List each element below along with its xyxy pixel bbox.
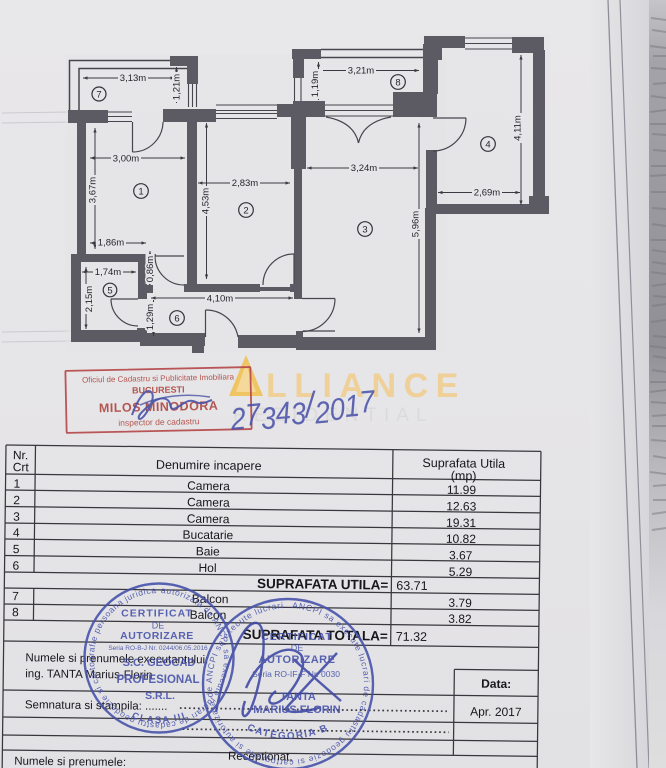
svg-text:Camera: Camera — [187, 479, 230, 494]
svg-text:1,19m: 1,19m — [310, 71, 321, 97]
svg-text:SUPRAFATA UTILA=: SUPRAFATA UTILA= — [257, 576, 389, 593]
svg-text:(mp): (mp) — [451, 469, 477, 483]
svg-text:Seria RO-IF-F Nr. 0030: Seria RO-IF-F Nr. 0030 — [252, 669, 340, 679]
svg-text:3.82: 3.82 — [448, 612, 472, 626]
svg-text:1,29m: 1,29m — [145, 304, 156, 330]
svg-text:S.R.L.: S.R.L. — [145, 690, 175, 702]
svg-text:3.79: 3.79 — [448, 596, 472, 610]
svg-text:5,96m: 5,96m — [411, 211, 422, 237]
svg-text:3,13m: 3,13m — [120, 73, 146, 84]
svg-text:3: 3 — [362, 225, 367, 236]
svg-text:5: 5 — [107, 286, 112, 297]
svg-text:1: 1 — [13, 477, 20, 491]
svg-text:11.99: 11.99 — [447, 483, 477, 497]
svg-text:63.71: 63.71 — [396, 579, 427, 593]
svg-text:S.C. GEOCAD: S.C. GEOCAD — [123, 657, 196, 669]
svg-text:inspector de cadastru: inspector de cadastru — [118, 416, 200, 428]
svg-text:7: 7 — [12, 589, 19, 603]
svg-text:3,67m: 3,67m — [88, 177, 99, 203]
svg-text:7: 7 — [96, 90, 101, 101]
svg-text:MARIUS FLORIN: MARIUS FLORIN — [253, 704, 340, 716]
svg-text:DE: DE — [152, 621, 165, 631]
svg-text:5: 5 — [13, 542, 20, 556]
svg-text:3,00m: 3,00m — [113, 154, 139, 165]
svg-text:5.29: 5.29 — [449, 565, 473, 579]
svg-text:Baie: Baie — [196, 544, 221, 558]
svg-text:0,86m: 0,86m — [145, 256, 156, 282]
svg-text:Data:: Data: — [481, 677, 511, 691]
svg-text:Denumire incapere: Denumire incapere — [156, 458, 262, 473]
svg-text:MILOS MINODORA: MILOS MINODORA — [99, 399, 219, 415]
svg-text:4: 4 — [485, 140, 490, 151]
svg-text:2: 2 — [243, 206, 248, 217]
svg-text:Camera: Camera — [187, 512, 230, 527]
svg-text:Crt: Crt — [13, 460, 30, 474]
svg-text:6: 6 — [174, 314, 179, 325]
svg-text:4: 4 — [13, 526, 20, 540]
svg-text:8: 8 — [12, 605, 19, 619]
svg-text:Hol: Hol — [198, 561, 216, 575]
svg-text:1,74m: 1,74m — [95, 267, 121, 278]
svg-text:CERTIFICAT: CERTIFICAT — [261, 631, 333, 643]
svg-text:AUTORIZARE: AUTORIZARE — [120, 630, 194, 642]
svg-text:3.67: 3.67 — [449, 548, 473, 562]
svg-text:Camera: Camera — [187, 495, 230, 510]
svg-text:CERTIFICAT: CERTIFICAT — [121, 608, 193, 620]
svg-text:4,11m: 4,11m — [513, 115, 524, 141]
svg-text:10.82: 10.82 — [446, 532, 477, 546]
svg-text:2,83m: 2,83m — [232, 178, 258, 189]
svg-text:3,21m: 3,21m — [348, 66, 374, 77]
svg-text:Seria RO-B-J Nr. 0244/06.05.20: Seria RO-B-J Nr. 0244/06.05.2016 — [108, 645, 208, 652]
svg-text:PROFESIONAL: PROFESIONAL — [116, 674, 199, 686]
svg-text:3: 3 — [13, 510, 20, 524]
svg-text:2,69m: 2,69m — [474, 188, 500, 199]
svg-text:1,86m: 1,86m — [98, 238, 124, 249]
svg-text:2: 2 — [13, 493, 20, 507]
svg-text:8: 8 — [395, 78, 400, 89]
svg-text:BUCURESTI: BUCURESTI — [132, 384, 185, 395]
svg-text:4,10m: 4,10m — [207, 294, 233, 305]
svg-text:Apr. 2017: Apr. 2017 — [470, 705, 522, 720]
svg-text:1: 1 — [138, 187, 143, 198]
svg-text:Numele si prenumele:: Numele si prenumele: — [14, 756, 126, 768]
svg-text:19.31: 19.31 — [446, 516, 477, 530]
svg-text:12.63: 12.63 — [446, 499, 477, 513]
svg-text:2,15m: 2,15m — [84, 286, 95, 312]
svg-text:6: 6 — [12, 559, 19, 573]
svg-text:71.32: 71.32 — [396, 630, 427, 644]
svg-text:Bucatarie: Bucatarie — [183, 528, 234, 543]
svg-text:1,21m: 1,21m — [172, 74, 183, 100]
svg-text:4,53m: 4,53m — [201, 188, 212, 214]
svg-text:3,24m: 3,24m — [351, 163, 377, 174]
